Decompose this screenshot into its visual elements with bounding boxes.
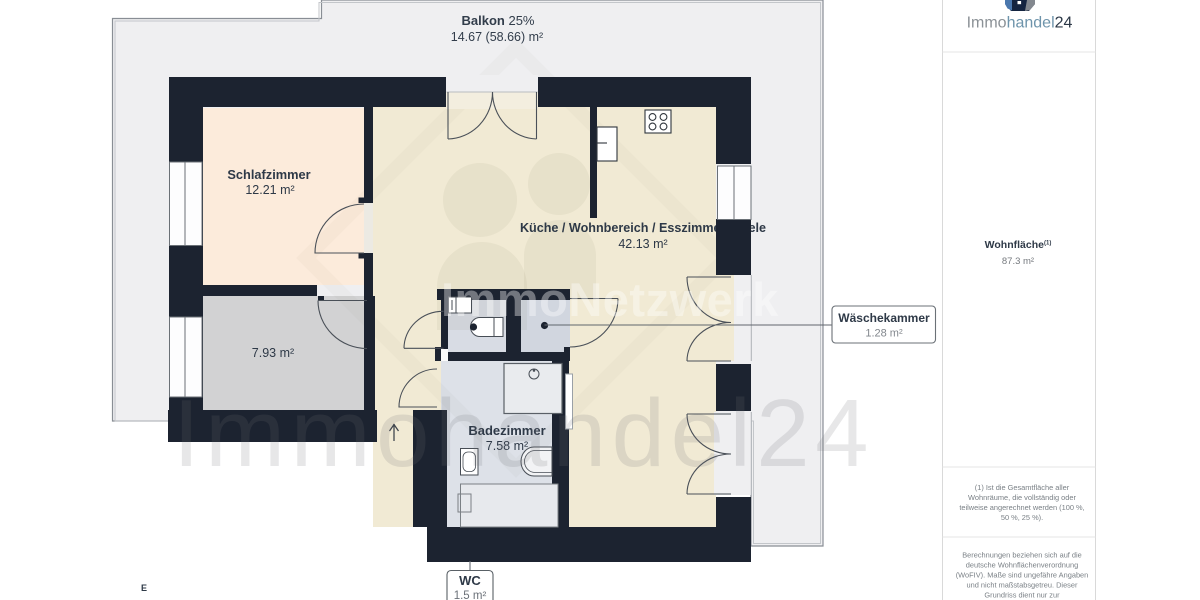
svg-text:Immohandel24: Immohandel24 xyxy=(967,15,1073,32)
svg-text:7.93 m²: 7.93 m² xyxy=(252,346,294,360)
svg-text:1.5 m²: 1.5 m² xyxy=(454,590,487,600)
svg-text:Berechnungen beziehen sich auf: Berechnungen beziehen sich auf die xyxy=(962,551,1082,560)
svg-text:42.13 m²: 42.13 m² xyxy=(618,237,667,251)
svg-text:1.28 m²: 1.28 m² xyxy=(865,328,903,340)
svg-text:ImmoNetzwerk: ImmoNetzwerk xyxy=(441,273,779,326)
svg-text:deutsche Wohnflächenverordnung: deutsche Wohnflächenverordnung xyxy=(966,561,1078,570)
svg-text:(1) Ist die Gesamtfläche aller: (1) Ist die Gesamtfläche aller xyxy=(975,483,1070,492)
svg-text:Schlafzimmer: Schlafzimmer xyxy=(227,167,310,182)
svg-text:(WoFIV). Maße sind ungefähre A: (WoFIV). Maße sind ungefähre Angaben xyxy=(956,571,1089,580)
svg-text:und nicht maßstabsgetreu. Dies: und nicht maßstabsgetreu. Dieser xyxy=(967,581,1078,590)
svg-text:teilweise angerechnet werden (: teilweise angerechnet werden (100 %, xyxy=(959,503,1084,512)
svg-text:Grundriss dient nur zur: Grundriss dient nur zur xyxy=(984,591,1060,600)
svg-text:Balkon 25%: Balkon 25% xyxy=(462,13,535,28)
svg-text:Wäschekammer: Wäschekammer xyxy=(838,311,930,325)
svg-text:Immohandel24: Immohandel24 xyxy=(173,380,874,487)
svg-text:E: E xyxy=(141,583,147,593)
svg-text:Wohnfläche(1): Wohnfläche(1) xyxy=(985,239,1052,251)
svg-text:14.67 (58.66) m²: 14.67 (58.66) m² xyxy=(451,30,543,44)
svg-text:WC: WC xyxy=(459,573,481,588)
svg-text:50 %, 25 %).: 50 %, 25 %). xyxy=(1001,513,1043,522)
svg-text:12.21 m²: 12.21 m² xyxy=(245,183,294,197)
svg-text:Wohnräume, die vollständig ode: Wohnräume, die vollständig oder xyxy=(968,493,1076,502)
svg-text:87.3 m²: 87.3 m² xyxy=(1002,256,1034,267)
